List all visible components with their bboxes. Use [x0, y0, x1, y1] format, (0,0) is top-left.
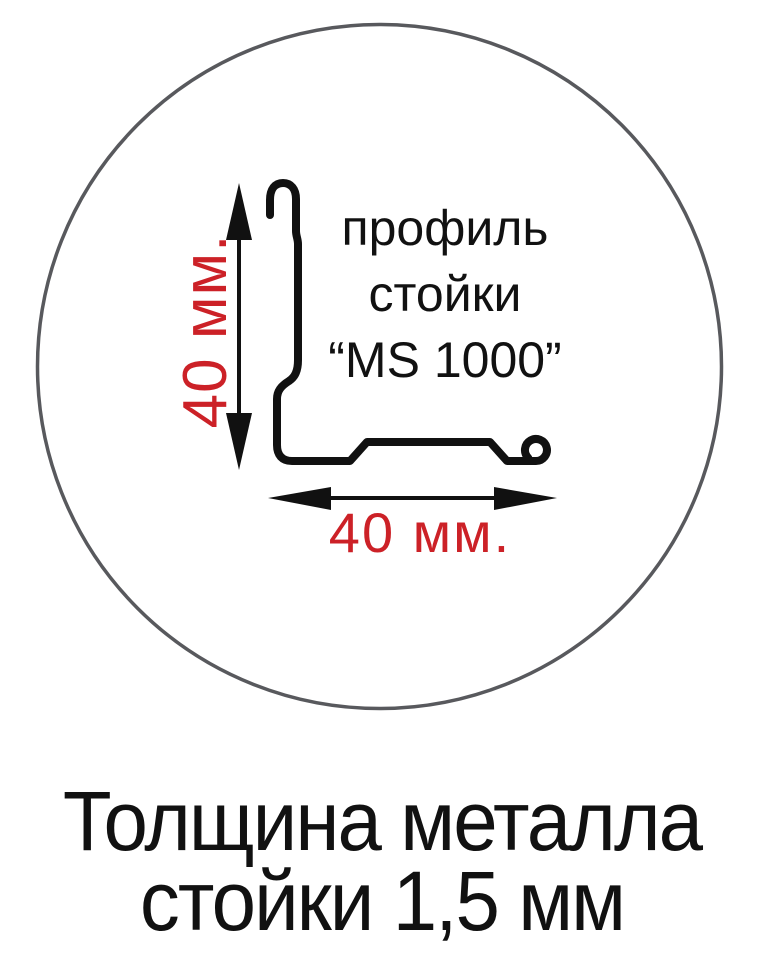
- height-dimension-label: 40 мм.: [170, 221, 240, 441]
- profile-name-line3: “MS 1000”: [328, 327, 561, 393]
- profile-name-line1: профиль: [328, 195, 561, 261]
- width-dimension-label: 40 мм.: [329, 505, 511, 561]
- caption: Толщина металла стойки 1,5 мм: [63, 781, 701, 941]
- product-diagram: профиль стойки “MS 1000” 40 мм. 40 мм. Т…: [0, 0, 765, 970]
- arrow-left-icon: [268, 487, 331, 510]
- profile-name-line2: стойки: [328, 261, 561, 327]
- caption-line1: Толщина металла: [63, 781, 701, 861]
- caption-line2: стойки 1,5 мм: [63, 861, 701, 941]
- profile-name-label: профиль стойки “MS 1000”: [328, 195, 561, 393]
